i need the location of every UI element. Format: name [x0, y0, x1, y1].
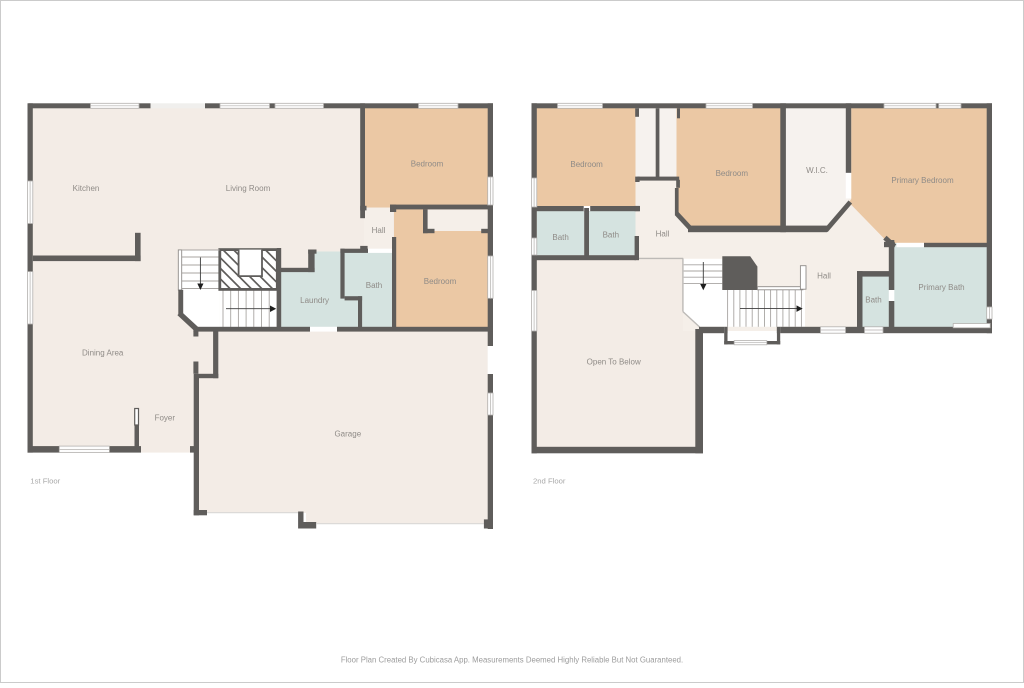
svg-text:Dining Area: Dining Area [82, 349, 124, 358]
svg-text:Bath: Bath [552, 233, 568, 242]
svg-text:Bath: Bath [366, 281, 382, 290]
svg-text:Foyer: Foyer [155, 414, 176, 423]
svg-text:Garage: Garage [334, 430, 361, 439]
svg-text:Hall: Hall [656, 230, 670, 239]
svg-text:Open To Below: Open To Below [587, 358, 641, 367]
svg-text:Primary Bath: Primary Bath [918, 283, 964, 292]
svg-text:Hall: Hall [372, 226, 386, 235]
svg-text:Floor Plan Created By Cubicasa: Floor Plan Created By Cubicasa App. Meas… [341, 656, 683, 665]
svg-text:1st Floor: 1st Floor [30, 476, 60, 485]
svg-text:Laundry: Laundry [300, 296, 329, 305]
svg-text:Bedroom: Bedroom [411, 160, 444, 169]
svg-text:Bath: Bath [865, 296, 881, 305]
svg-text:2nd Floor: 2nd Floor [533, 476, 566, 485]
svg-text:Living Room: Living Room [226, 184, 271, 193]
svg-text:W.I.C.: W.I.C. [806, 166, 828, 175]
svg-text:Bedroom: Bedroom [570, 160, 603, 169]
svg-text:Bath: Bath [603, 231, 619, 240]
svg-text:Kitchen: Kitchen [73, 184, 100, 193]
svg-text:Primary Bedroom: Primary Bedroom [891, 176, 954, 185]
svg-text:Bedroom: Bedroom [424, 277, 457, 286]
svg-text:Bedroom: Bedroom [716, 169, 749, 178]
svg-text:Hall: Hall [817, 272, 831, 281]
